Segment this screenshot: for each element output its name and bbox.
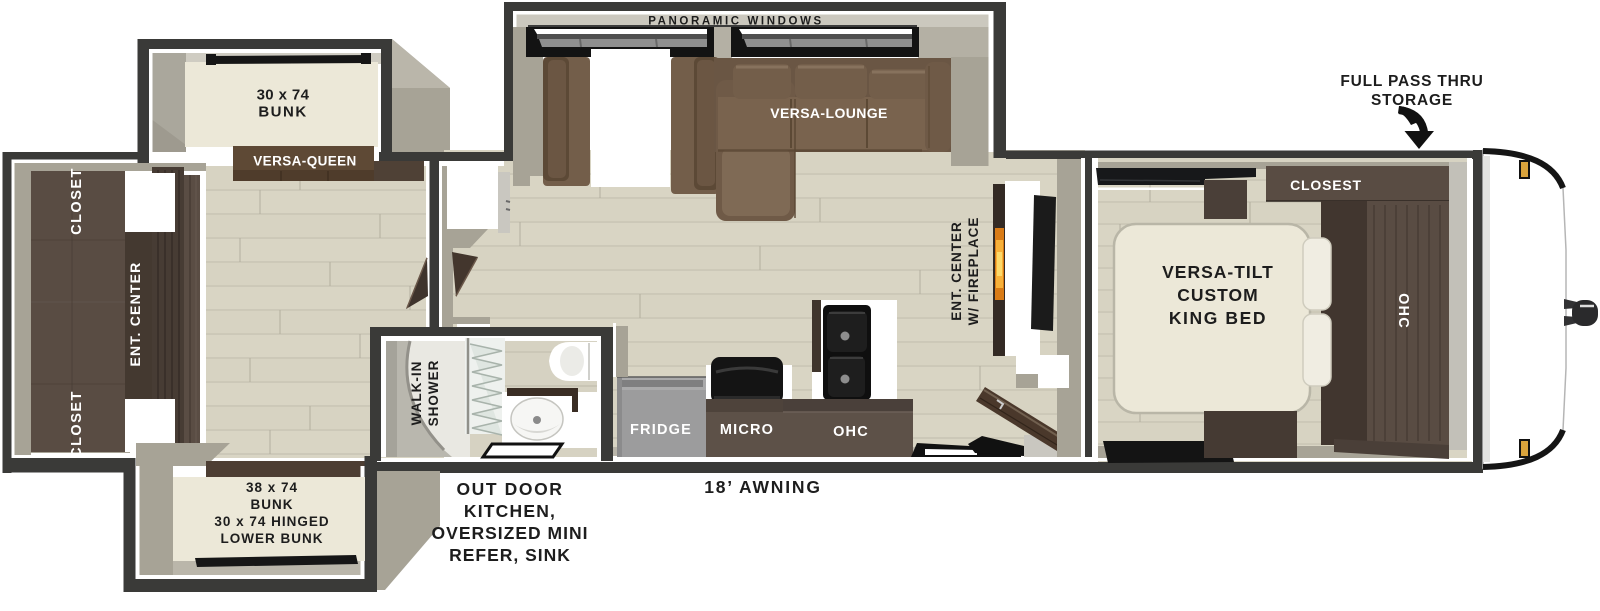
svg-text:ENT. CENTER: ENT. CENTER [127, 262, 143, 367]
svg-text:REFER, SINK: REFER, SINK [449, 545, 571, 565]
svg-text:OHC: OHC [833, 424, 869, 440]
svg-text:CLOSEST: CLOSEST [1290, 177, 1362, 193]
svg-text:30 x 74 HINGED: 30 x 74 HINGED [214, 514, 329, 529]
svg-text:30 x 74: 30 x 74 [257, 87, 310, 104]
svg-text:BUNK: BUNK [258, 104, 307, 121]
svg-text:OUT DOOR: OUT DOOR [456, 479, 563, 499]
svg-text:18’ AWNING: 18’ AWNING [704, 477, 822, 497]
svg-text:WALK-IN: WALK-IN [409, 361, 424, 426]
svg-text:FRIDGE: FRIDGE [630, 422, 692, 438]
svg-text:LOWER BUNK: LOWER BUNK [221, 531, 324, 546]
svg-text:CLOSET: CLOSET [69, 390, 85, 458]
svg-text:OVERSIZED MINI: OVERSIZED MINI [432, 523, 589, 543]
svg-text:BUNK: BUNK [251, 497, 294, 512]
svg-text:ENT. CENTER: ENT. CENTER [949, 221, 964, 321]
svg-text:VERSA-TILT: VERSA-TILT [1162, 262, 1274, 282]
svg-text:38 x 74: 38 x 74 [246, 480, 298, 495]
svg-text:VERSA-QUEEN: VERSA-QUEEN [253, 154, 356, 169]
svg-text:STORAGE: STORAGE [1371, 92, 1453, 109]
svg-text:FULL PASS THRU: FULL PASS THRU [1340, 73, 1483, 90]
svg-text:MICRO: MICRO [720, 422, 774, 438]
svg-text:OHC: OHC [1395, 293, 1411, 329]
svg-text:KITCHEN,: KITCHEN, [464, 501, 556, 521]
svg-text:CUSTOM: CUSTOM [1177, 285, 1259, 305]
svg-text:W/ FIREPLACE: W/ FIREPLACE [966, 217, 981, 326]
svg-text:VERSA-LOUNGE: VERSA-LOUNGE [770, 105, 888, 121]
svg-text:SHOWER: SHOWER [426, 360, 441, 427]
svg-text:KING BED: KING BED [1169, 308, 1267, 328]
svg-text:CLOSET: CLOSET [69, 167, 85, 235]
